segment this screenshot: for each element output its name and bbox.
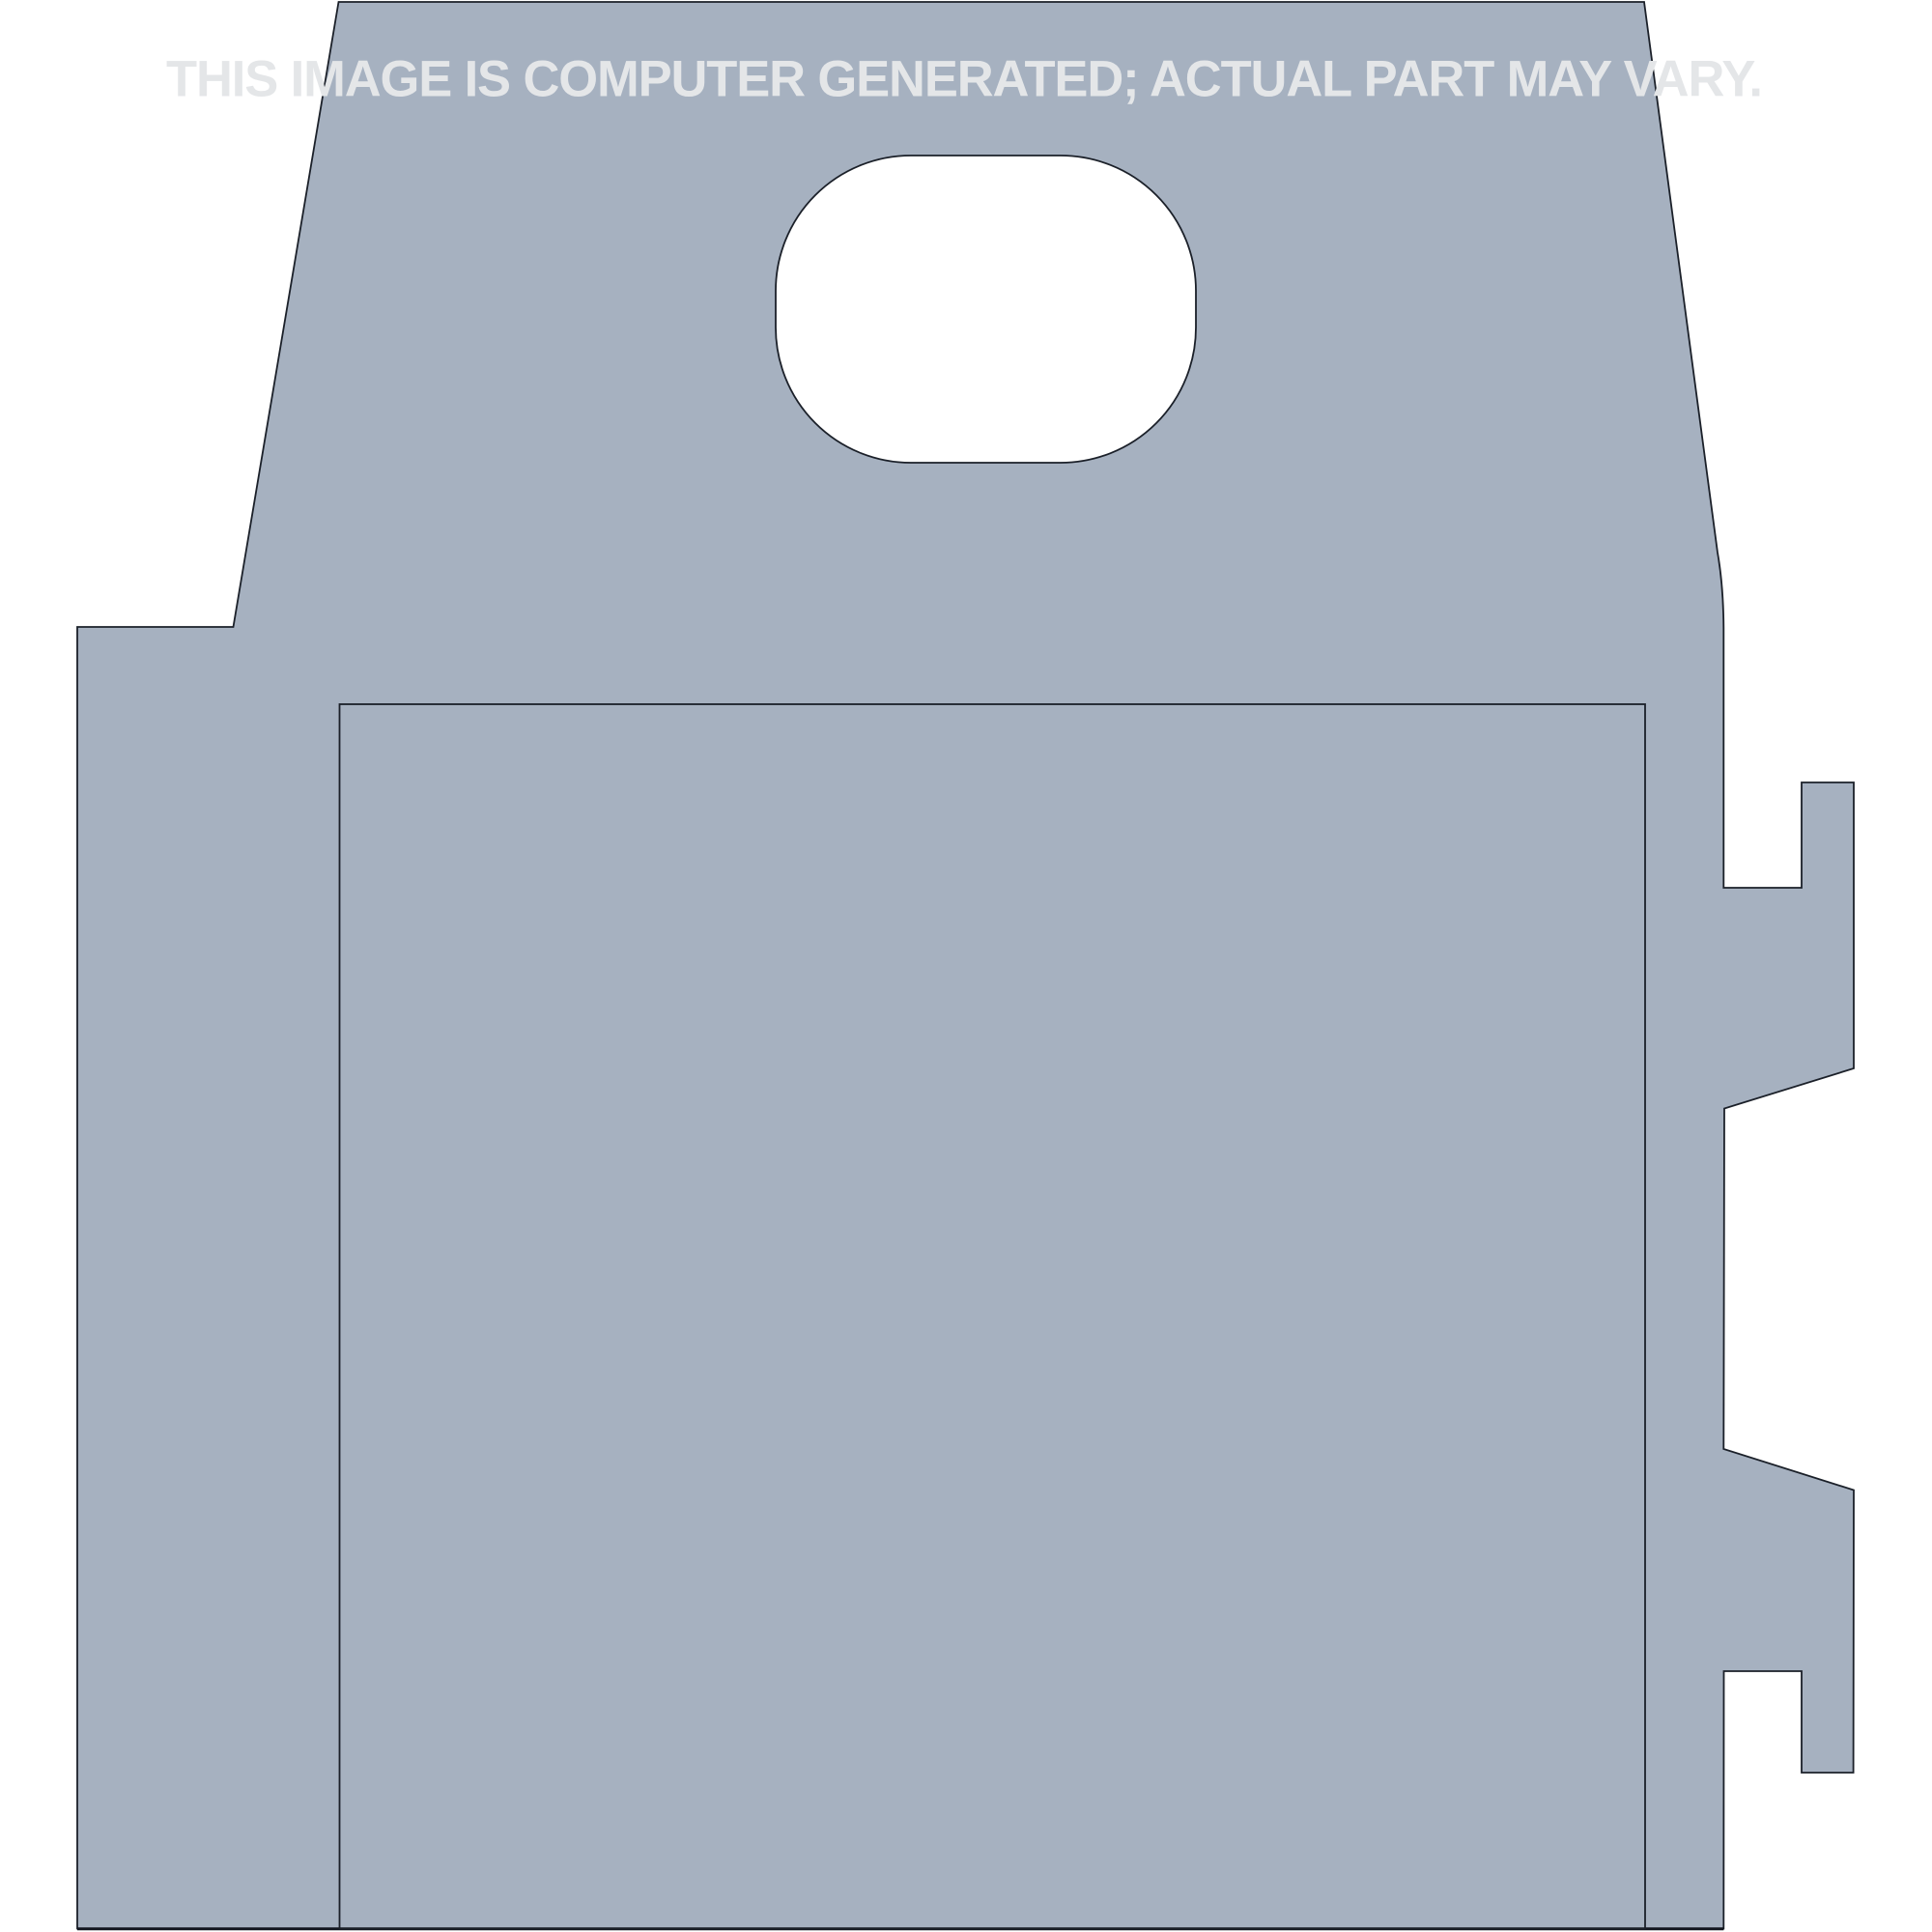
svg-text:THIS IMAGE IS COMPUTER GENERAT: THIS IMAGE IS COMPUTER GENERATED; ACTUAL… <box>166 51 1763 108</box>
